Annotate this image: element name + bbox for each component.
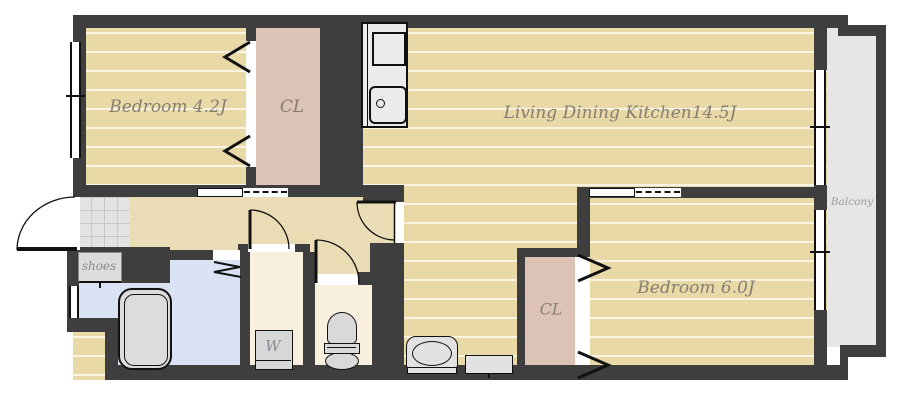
closet2-label: CL <box>540 300 563 319</box>
wall-washroom-stub-r <box>295 244 310 252</box>
wall-balcony-bottom-conn <box>840 345 848 380</box>
wall-ldk-door-lower <box>370 243 404 285</box>
ldk-label: Living Dining Kitchen14.5J <box>504 103 737 123</box>
washer-box-line <box>256 360 291 361</box>
toilet-seat-line <box>327 347 356 348</box>
vanity-cabinet-tick <box>488 374 490 378</box>
wall-balcony-outer-right <box>876 25 886 355</box>
bathtub <box>118 288 172 370</box>
kitchen-unit <box>361 22 408 128</box>
wall-bath-washroom <box>240 250 250 368</box>
bathroom-doorway <box>213 250 240 260</box>
washbasin-base <box>407 367 457 374</box>
toilet-seat-band <box>324 343 360 354</box>
bedroom1-window-tick <box>66 95 85 97</box>
washroom-doorway <box>248 244 295 252</box>
kitchen-stove <box>372 32 406 66</box>
wall-top <box>73 15 848 28</box>
bedroom2-sliding-door-left <box>589 188 635 197</box>
bedroom1-sliding-door-left <box>197 188 243 197</box>
closet1-label: CL <box>280 97 304 117</box>
bedroom1-sliding-door-dash <box>244 191 287 193</box>
bedroom2-window-tick <box>810 251 830 253</box>
shoes-cabinet-tick <box>99 283 101 288</box>
ldk-doorway <box>395 202 404 243</box>
bedroom1-window <box>70 42 81 158</box>
toilet-base <box>325 352 359 370</box>
entrance-doorway <box>68 197 80 250</box>
bedroom2-sliding-door-dash <box>636 191 680 193</box>
vanity-cabinet <box>465 355 513 374</box>
wall-right-c <box>814 310 827 365</box>
wall-closet2-left <box>517 248 525 365</box>
bathroom-floor <box>170 260 240 368</box>
bathroom-window <box>69 286 79 318</box>
wall-closet2-top <box>517 248 577 257</box>
toilet-doorway <box>315 274 358 285</box>
balcony-floor <box>827 28 876 347</box>
closet1-opening <box>246 40 256 168</box>
wall-bedroom2-left <box>577 187 590 257</box>
kitchen-faucet <box>376 99 385 108</box>
wall-closet1-right <box>320 28 363 197</box>
shoes-label: shoes <box>82 259 116 273</box>
wall-ldk-door-upper <box>363 185 404 202</box>
kitchen-sink <box>369 86 407 124</box>
bathtub-inner <box>124 294 168 366</box>
closet1-jamb-bottom <box>246 167 256 185</box>
balcony-label: Balcony <box>831 196 873 208</box>
toilet-bowl <box>327 312 357 344</box>
kitchen-unit-edge <box>367 24 368 126</box>
genkan-tile <box>78 197 130 247</box>
bedroom2-balcony-window <box>814 210 826 310</box>
wall-toilet-right <box>372 285 404 370</box>
bedroom2-label: Bedroom 6.0J <box>637 278 754 298</box>
wall-entry-block <box>122 247 170 283</box>
washer-label: W <box>265 337 280 355</box>
washbasin-bowl <box>412 341 452 366</box>
washbasin <box>406 336 458 368</box>
wall-right-a <box>814 28 827 70</box>
closet2-opening <box>575 257 590 365</box>
wall-right-b <box>814 185 827 210</box>
closet1-jamb-top <box>246 28 256 41</box>
entrance-door-arc <box>17 197 75 250</box>
ldk-window-tick <box>810 126 830 128</box>
floor-plan: Bedroom 4.2J CL Living Dining Kitchen14.… <box>0 0 906 414</box>
wall-toilet-top-r <box>358 272 372 285</box>
wall-washroom-toilet <box>303 252 315 365</box>
bedroom1-label: Bedroom 4.2J <box>109 97 226 117</box>
wall-bathroom-top <box>170 250 215 260</box>
